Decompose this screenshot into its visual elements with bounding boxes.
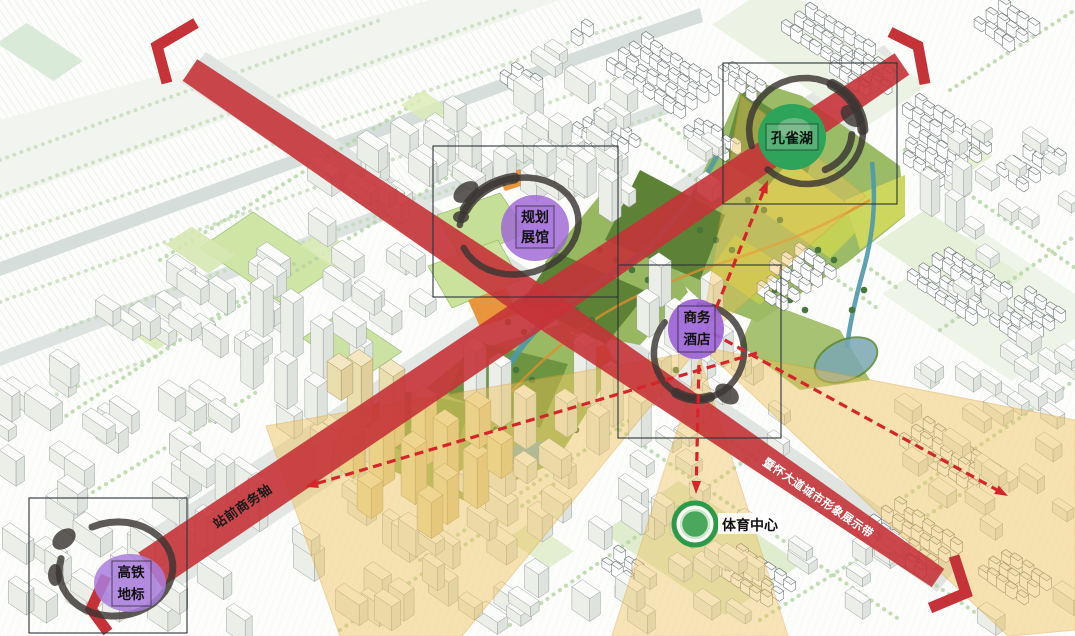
svg-text:体育中心: 体育中心 [722, 517, 778, 533]
svg-text:商务: 商务 [684, 309, 712, 325]
svg-text:规划: 规划 [521, 209, 549, 225]
svg-text:孔雀湖: 孔雀湖 [771, 130, 813, 146]
svg-text:展馆: 展馆 [521, 229, 549, 245]
svg-text:酒店: 酒店 [684, 331, 712, 347]
svg-text:高铁: 高铁 [118, 564, 145, 580]
svg-text:地标: 地标 [118, 586, 145, 602]
